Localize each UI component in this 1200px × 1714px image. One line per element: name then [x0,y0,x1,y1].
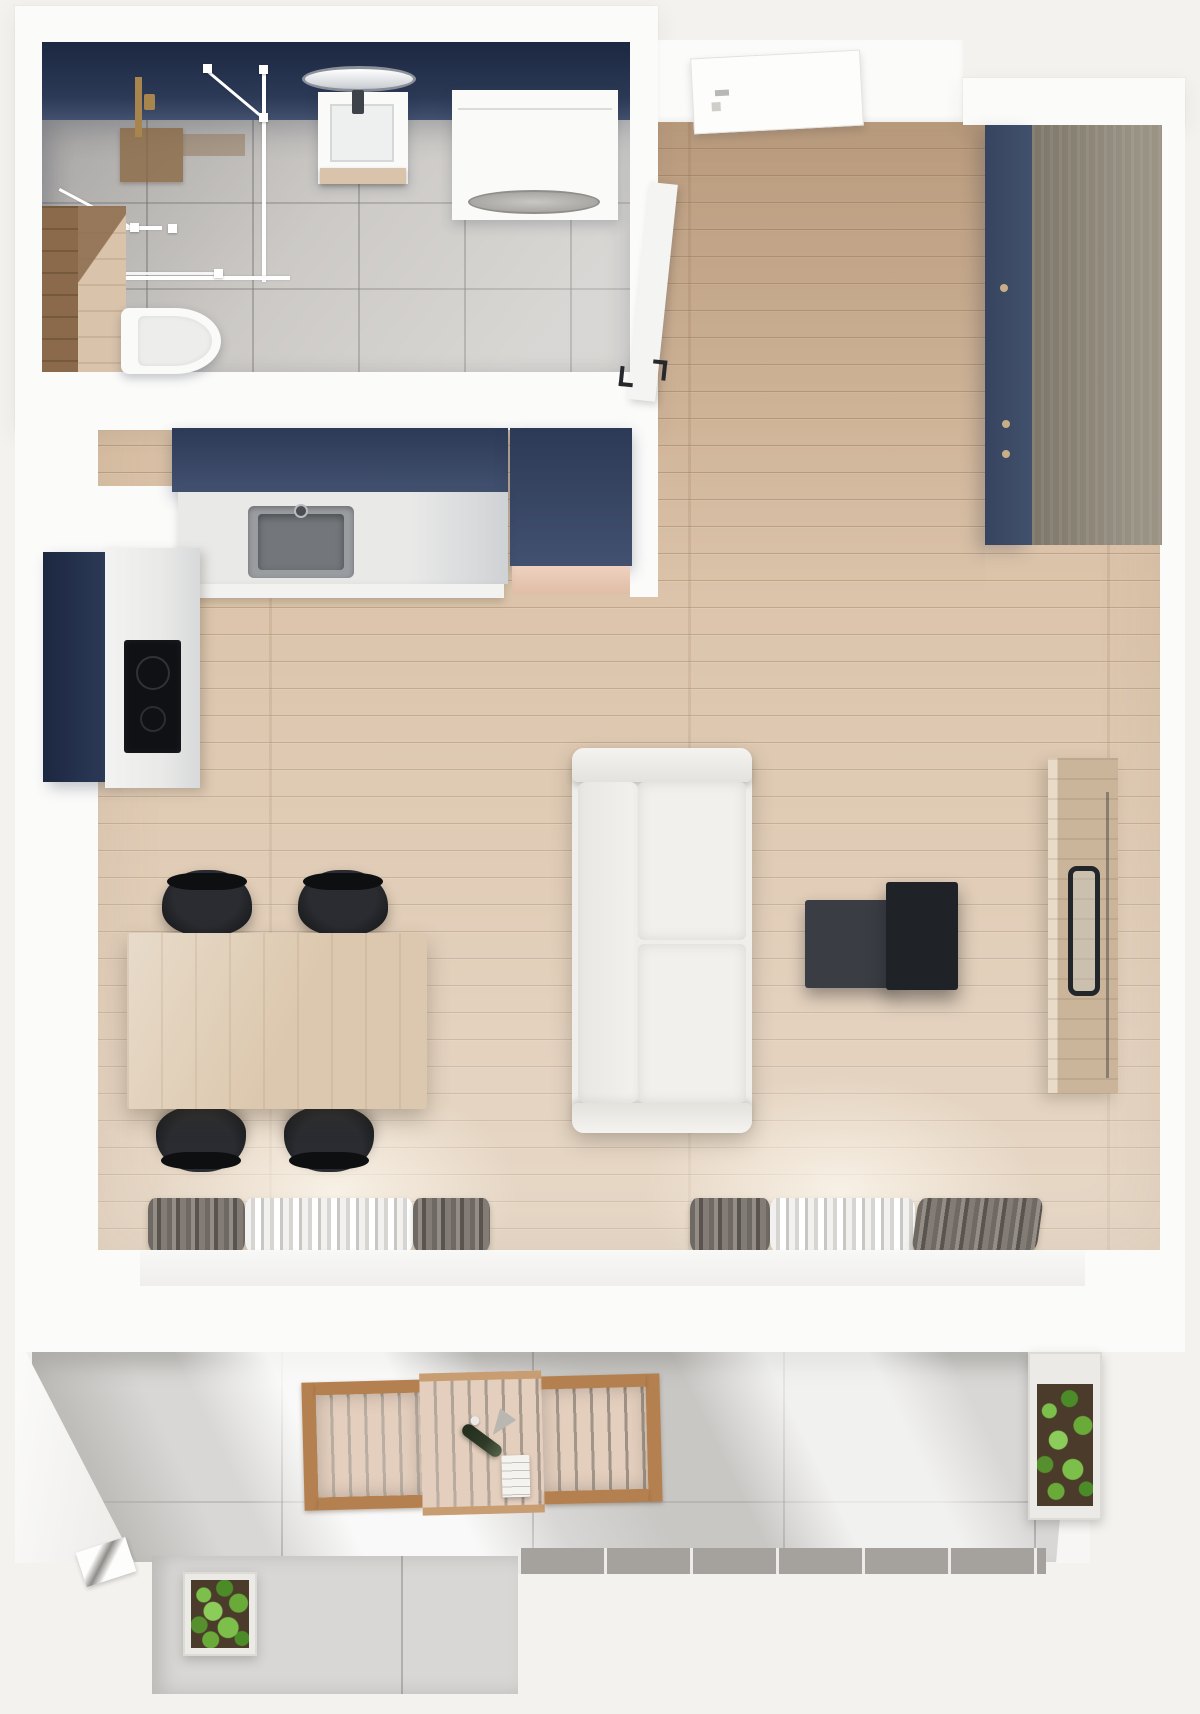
curtain-left-dark-b [413,1198,490,1252]
chair-slats [316,1393,423,1498]
vanity-wood-shelf [320,168,406,184]
entry-nook-top-wall [963,78,1185,125]
entrance-door-handle [715,90,729,97]
toilet-seat [138,316,212,366]
curtain-right-dark-b [911,1198,1044,1252]
right-outer-wall [1160,78,1185,1352]
glass-connector [168,224,177,233]
bottom-right-wall-corner [1085,1250,1185,1290]
shower-rail [135,77,142,137]
curtain-left-light [245,1198,413,1252]
sofa-armrest-top [572,748,752,782]
kitchen-tall-cabinet-block [510,428,632,566]
shower-glass-panel-mid [125,272,220,275]
outdoor-chair-left [301,1380,422,1511]
dining-chair [298,870,388,936]
planter-right-plant [1037,1384,1093,1506]
kitchen-sink-basin [258,514,344,570]
shower-head [144,94,155,110]
sofa-seat-cushion [638,944,746,1103]
kitchen-corner-counter [98,486,178,556]
serving-tray [501,1455,530,1498]
bathroom-door-handle-inner [651,359,667,380]
washing-machine-panel [458,108,612,110]
wardrobe-top [1032,125,1162,545]
sofa [572,748,752,1133]
curtain-right-dark-a [690,1198,770,1252]
planter-left-plant [191,1580,249,1648]
shower-shelf [183,134,245,156]
chair-front-bar [544,1489,648,1505]
round-mirror [302,66,416,92]
tv-screen-edge [1106,792,1109,1078]
glass-connector [259,65,268,74]
wood-bench-corner [78,206,126,296]
sofa-back-cushions [578,782,638,1103]
kitchen-side-wall-strip [630,430,658,597]
shower-mat [120,128,183,182]
oven-column-side [43,552,105,782]
chair-front-bar [318,1495,422,1511]
planter-right [1028,1352,1102,1520]
wood-bench-side [42,206,78,372]
dining-chair [284,1106,374,1172]
bathroom-door-handle-outer [619,366,635,387]
cooktop-burner-large [136,656,170,690]
kitchen-cabinet-front [182,584,504,598]
chair-slats [542,1387,649,1492]
glass-connector [203,64,212,73]
floorplan-canvas [0,0,1200,1714]
cooktop-burner-small [140,706,166,732]
shower-glass-panel-front [110,276,290,280]
sink-faucet [352,90,364,114]
dining-chair [156,1106,246,1172]
curtain-left-dark-a [148,1198,245,1252]
outdoor-table [419,1370,545,1515]
wardrobe-knob [1002,450,1010,458]
planter-left [183,1572,257,1656]
kitchen-faucet [296,506,306,516]
outdoor-furniture-set [301,1367,665,1518]
balcony-edge-tiles [518,1548,1046,1574]
kitchen-upper-cabinet-run [172,428,508,492]
hall-floor-shade [640,122,985,602]
coffee-table-large [805,900,895,988]
glass-connector [130,223,139,232]
bottom-outer-wall [15,1286,1185,1352]
wardrobe-front [985,125,1032,545]
entrance-door-hinge [711,102,720,111]
shower-glass-panel-right [262,70,266,282]
kitchen-plinth [512,566,630,594]
entrance-door-leaf [690,50,864,135]
sofa-seat-cushion [638,782,746,940]
sofa-armrest-bottom [572,1103,752,1133]
curtain-right-light [770,1198,915,1252]
coffee-table-small [886,882,958,990]
bottom-left-wall-corner [15,1250,140,1290]
glass-connector [214,269,223,278]
window-sill [140,1250,1085,1286]
wardrobe-knob [1002,420,1010,428]
washing-machine-drum [468,190,600,214]
dining-table [127,933,427,1109]
glass-connector [259,113,268,122]
wardrobe-knob [1000,284,1008,292]
outdoor-chair-right [541,1373,662,1504]
tv-screen [1068,866,1100,996]
dining-chair [162,870,252,936]
